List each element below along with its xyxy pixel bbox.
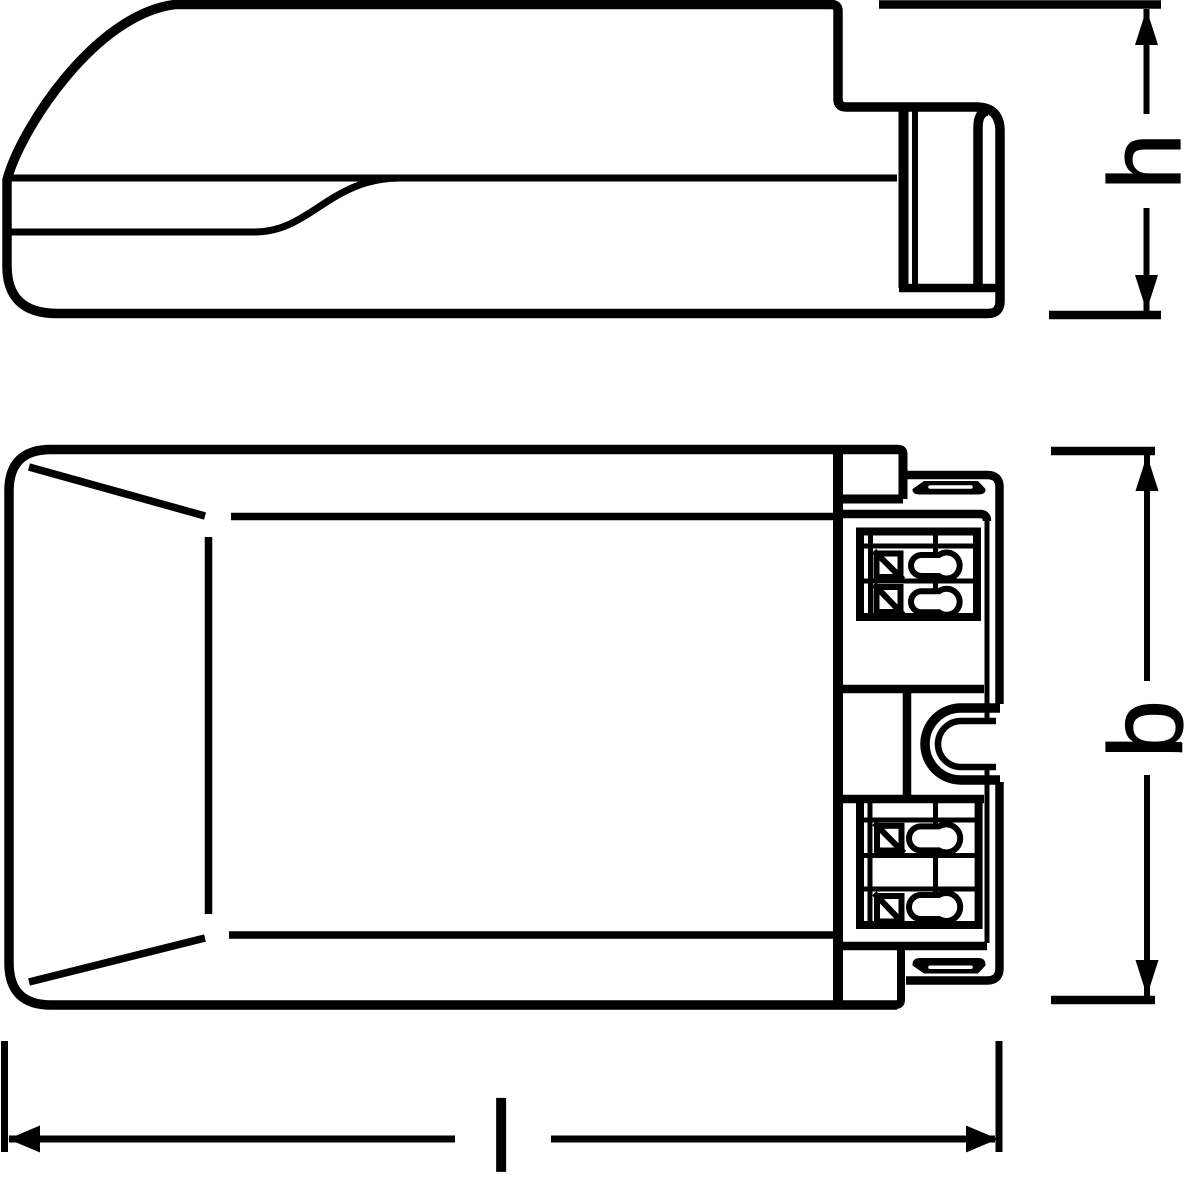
svg-text:b: b xyxy=(1088,700,1200,758)
svg-text:h: h xyxy=(1088,133,1200,190)
svg-text:l: l xyxy=(490,1081,512,1192)
